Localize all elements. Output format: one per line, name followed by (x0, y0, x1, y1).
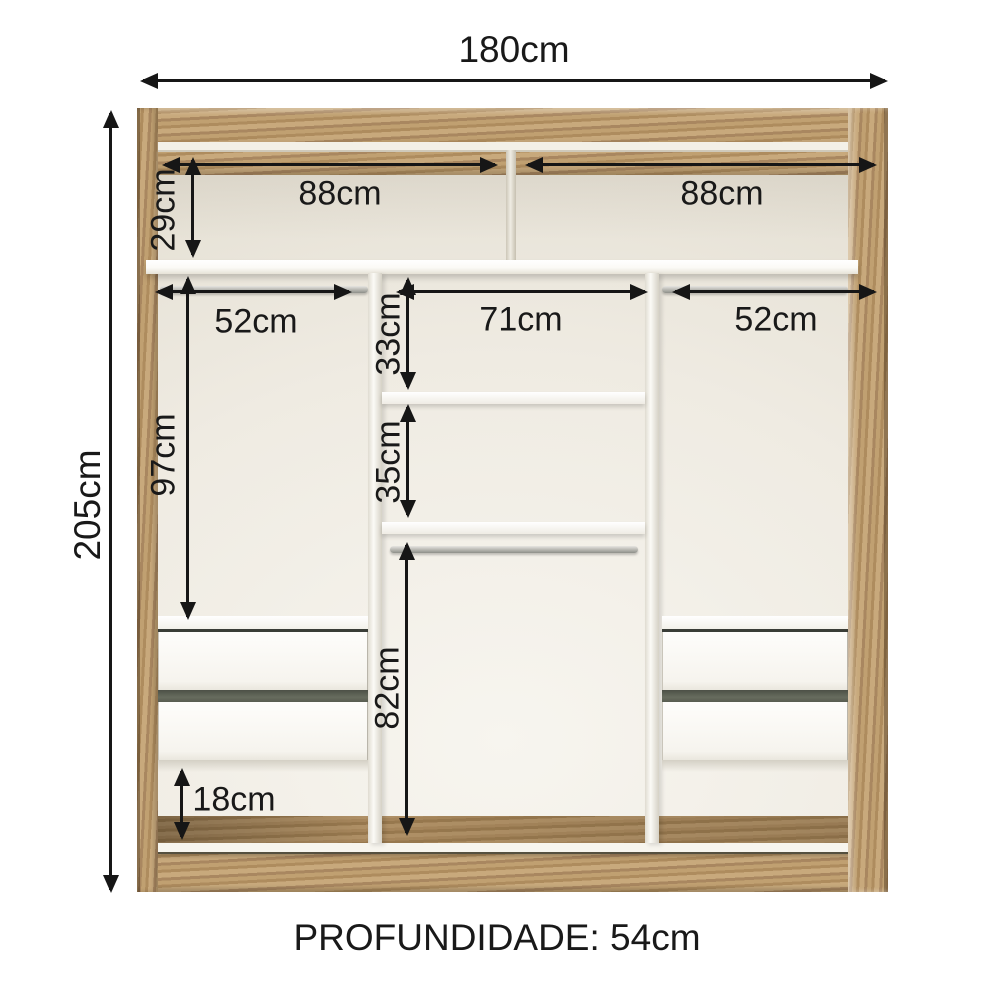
drawer-front (662, 632, 848, 690)
dim-label-top-shelf-height: 29cm (145, 168, 184, 251)
dim-label-right-rod-width: 52cm (734, 301, 817, 340)
drawer-unit-top (662, 616, 848, 629)
center-lower-shelf (382, 522, 645, 534)
top-shelf (146, 260, 858, 274)
dim-arrow-top-left-width (162, 157, 498, 173)
dim-label-center-hang-height: 82cm (369, 646, 408, 729)
dim-label-center-width: 71cm (479, 301, 562, 340)
top-center-divider (506, 150, 516, 260)
drawer-gap (662, 690, 848, 702)
right-partition (645, 273, 659, 843)
dim-arrow-center-width (396, 284, 648, 300)
drawer-unit-shadow (662, 760, 848, 772)
dim-arrow-right-rod-width (672, 284, 877, 300)
wardrobe-floor (158, 816, 848, 843)
left-drawer-unit (158, 616, 368, 772)
center-upper-shelf (382, 392, 645, 404)
drawer-front (158, 632, 368, 690)
dim-label-below-drawer-gap: 18cm (192, 781, 275, 820)
drawer-front (158, 702, 368, 760)
dim-label-left-hang-height: 97cm (145, 413, 184, 496)
wardrobe-dimension-diagram: 180cm 205cm 88cm 88cm 29cm 52cm 71cm 52c… (0, 0, 1000, 1000)
dim-label-left-rod-width: 52cm (214, 303, 297, 342)
dim-label-width: 180cm (458, 29, 569, 71)
dim-arrow-width (140, 73, 888, 89)
center-hanging-rod (390, 546, 638, 553)
drawer-front (662, 702, 848, 760)
dim-label-top-right-width: 88cm (680, 175, 763, 214)
dim-arrow-top-right-width (525, 157, 877, 173)
right-drawer-unit (662, 616, 848, 772)
wardrobe-base-panel (137, 852, 888, 892)
dim-label-top-left-width: 88cm (298, 175, 381, 214)
dim-label-center-gap-lower: 35cm (370, 420, 409, 503)
dim-label-height: 205cm (67, 449, 109, 560)
dim-arrow-below-drawer-gap (174, 768, 190, 840)
wardrobe-right-panel (848, 108, 888, 892)
depth-label: PROFUNDIDADE: 54cm (293, 917, 700, 959)
wardrobe-base-trim (141, 843, 884, 854)
dim-label-center-gap-upper: 33cm (370, 292, 409, 375)
drawer-gap (158, 690, 368, 702)
dim-arrow-top-shelf-height (185, 157, 201, 258)
